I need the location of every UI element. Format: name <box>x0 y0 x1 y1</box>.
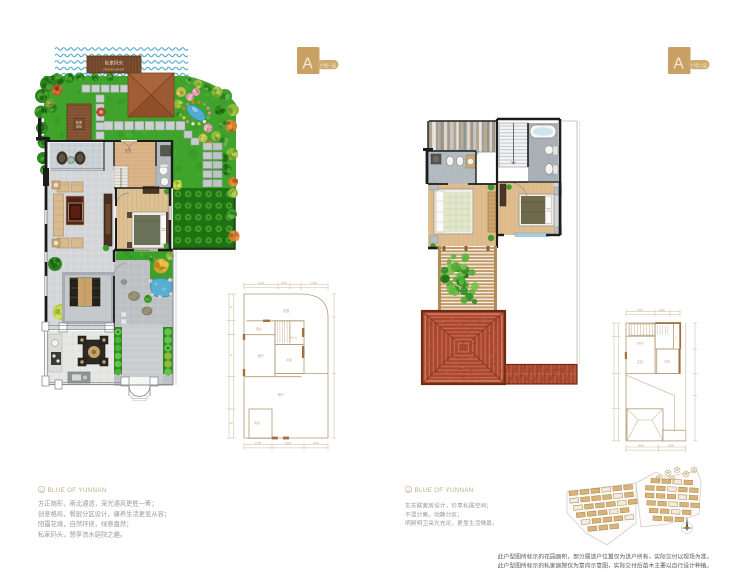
svg-text:私家码头，憩享流水庭院之趣。: 私家码头，憩享流水庭院之趣。 <box>38 529 126 538</box>
svg-text:玄关联套房设计，珍享私属空间；: 玄关联套房设计，珍享私属空间； <box>405 502 492 510</box>
svg-text:次卧: 次卧 <box>286 357 292 362</box>
svg-text:干湿分离，动静分区；: 干湿分离，动静分区； <box>405 510 463 518</box>
svg-text:A: A <box>673 56 684 73</box>
svg-text:阳台: 阳台 <box>256 326 262 331</box>
svg-text:3300: 3300 <box>311 281 318 285</box>
svg-text:4200: 4200 <box>258 281 265 285</box>
svg-text:户型一层: 户型一层 <box>320 62 336 68</box>
svg-text:3600: 3600 <box>638 443 645 447</box>
svg-text:卫生间: 卫生间 <box>289 336 297 340</box>
svg-text:2700: 2700 <box>255 441 262 445</box>
svg-text:户型二层: 户型二层 <box>691 62 707 68</box>
svg-text:此户型图所标示的私家庭院仅为意向示意图，实际交付后苗木主要以: 此户型图所标示的私家庭院仅为意向示意图，实际交付后苗木主要以自行设计种植。 <box>498 562 713 570</box>
svg-text:A: A <box>302 56 313 73</box>
svg-text:玄关: 玄关 <box>125 148 132 153</box>
svg-text:创意格局，餐厨分区设计，康养生活更显从容；: 创意格局，餐厨分区设计，康养生活更显从容； <box>38 509 170 518</box>
svg-text:1800: 1800 <box>659 308 666 312</box>
svg-text:主卧: 主卧 <box>637 359 644 364</box>
svg-text:BLUE OF YUNNAN: BLUE OF YUNNAN <box>48 487 107 494</box>
svg-text:阳露花境，自然环绕，绿意盎然；: 阳露花境，自然环绕，绿意盎然； <box>38 519 132 528</box>
svg-text:云: 云 <box>407 489 411 493</box>
svg-text:餐厅: 餐厅 <box>278 392 285 397</box>
svg-text:3300: 3300 <box>285 441 292 445</box>
svg-text:方正随形，南北通透，采光通风更胜一筹；: 方正随形，南北通透，采光通风更胜一筹； <box>38 499 158 508</box>
svg-text:此户型图所标示的花园面积，部分属该户位置仅为该户所有，实际交: 此户型图所标示的花园面积，部分属该户位置仅为该户所有，实际交付以现场为准。 <box>498 553 713 561</box>
svg-text:BLUE OF YUNNAN: BLUE OF YUNNAN <box>415 487 474 494</box>
svg-text:明厨明卫采光充足，更显生活情景。: 明厨明卫采光充足，更显生活情景。 <box>405 519 498 527</box>
svg-text:1500: 1500 <box>281 281 288 285</box>
svg-text:2850: 2850 <box>668 443 675 447</box>
svg-text:客厅: 客厅 <box>258 353 265 358</box>
svg-text:2400: 2400 <box>313 441 320 445</box>
svg-text:厨房: 厨房 <box>254 420 260 425</box>
svg-text:卫: 卫 <box>675 337 678 340</box>
svg-text:私家码头: 私家码头 <box>105 60 124 67</box>
svg-text:花园: 花园 <box>283 308 289 313</box>
svg-text:PRIVATE WHARF: PRIVATE WHARF <box>104 68 125 72</box>
svg-text:泊位: 泊位 <box>76 124 82 129</box>
svg-text:云: 云 <box>40 489 44 493</box>
svg-text:次卧: 次卧 <box>664 359 670 364</box>
svg-text:衣帽间: 衣帽间 <box>636 341 644 345</box>
svg-text:3600: 3600 <box>637 308 644 312</box>
